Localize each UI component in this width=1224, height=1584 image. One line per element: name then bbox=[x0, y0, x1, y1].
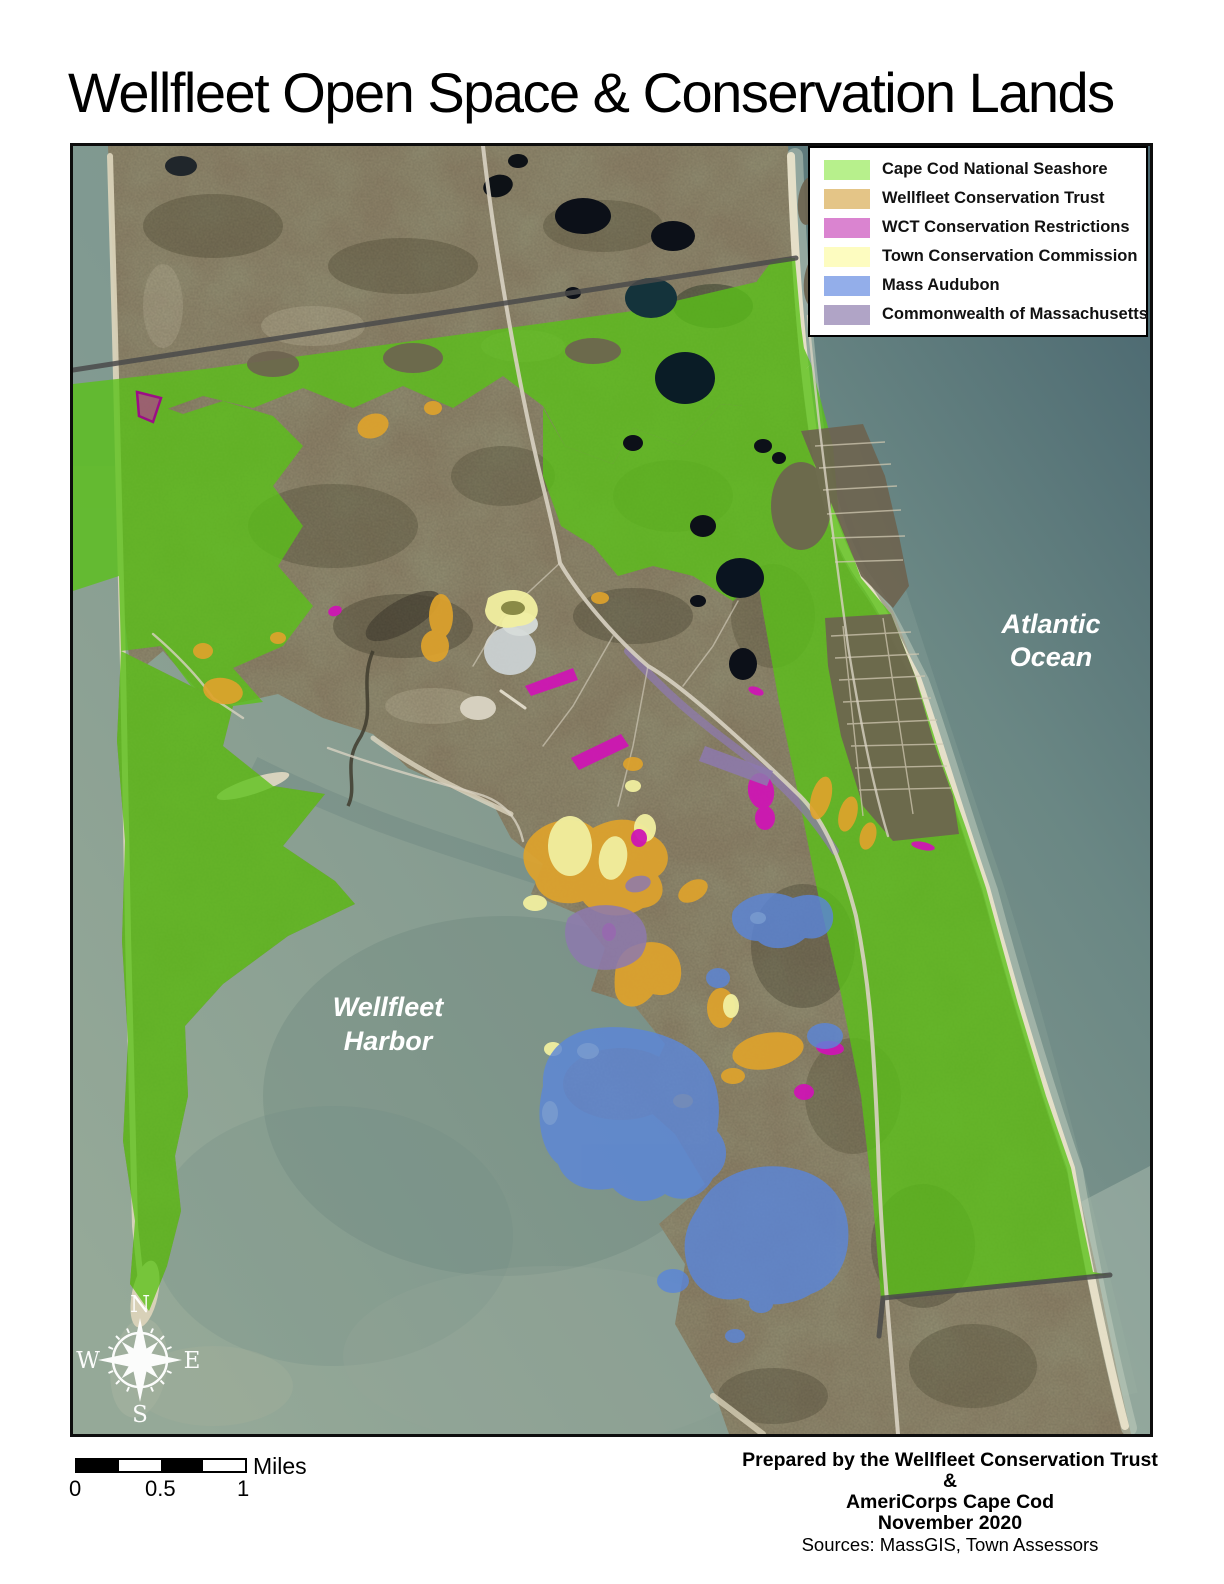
legend-label: Wellfleet Conservation Trust bbox=[882, 189, 1105, 208]
scale-segment bbox=[119, 1460, 161, 1471]
credits-line: & bbox=[740, 1471, 1160, 1492]
wellfleet-harbor-label-line1: Wellfleet bbox=[333, 992, 445, 1022]
scale-segment bbox=[77, 1460, 119, 1471]
legend-swatch bbox=[824, 218, 870, 238]
legend-label: Town Conservation Commission bbox=[882, 247, 1137, 266]
compass-n-label: N bbox=[130, 1292, 150, 1318]
legend-swatch bbox=[824, 276, 870, 296]
scale-bar: Miles 0 0.5 1 bbox=[75, 1458, 335, 1502]
legend-label: WCT Conservation Restrictions bbox=[882, 218, 1130, 237]
scale-bar-ticks: 0 0.5 1 bbox=[75, 1476, 335, 1502]
legend-label: Mass Audubon bbox=[882, 276, 1000, 295]
map-svg: Atlantic Ocean Wellfleet Harbor bbox=[73, 146, 1150, 1434]
legend-swatch bbox=[824, 247, 870, 267]
scale-segment bbox=[161, 1460, 203, 1471]
legend-item: Wellfleet Conservation Trust bbox=[810, 184, 1146, 213]
credits-line: AmeriCorps Cape Cod bbox=[740, 1492, 1160, 1513]
legend-item: WCT Conservation Restrictions bbox=[810, 213, 1146, 242]
map-legend: Cape Cod National SeashoreWellfleet Cons… bbox=[808, 146, 1148, 337]
legend-swatch bbox=[824, 160, 870, 180]
compass-e-label: E bbox=[184, 1348, 201, 1374]
credits-line: Prepared by the Wellfleet Conservation T… bbox=[740, 1450, 1160, 1471]
legend-label: Commonwealth of Massachusetts bbox=[882, 305, 1148, 324]
wellfleet-harbor-label-line2: Harbor bbox=[344, 1026, 434, 1056]
credits-line: November 2020 bbox=[740, 1513, 1160, 1534]
page: Wellfleet Open Space & Conservation Land… bbox=[0, 0, 1224, 1584]
legend-item: Commonwealth of Massachusetts bbox=[810, 300, 1146, 329]
atlantic-ocean-label-line2: Ocean bbox=[1010, 642, 1093, 672]
credits-sources-line: Sources: MassGIS, Town Assessors bbox=[740, 1534, 1160, 1555]
scale-bar-segments bbox=[75, 1458, 247, 1473]
scale-segment bbox=[203, 1460, 245, 1471]
legend-swatch bbox=[824, 189, 870, 209]
cannon-hill-marsh bbox=[501, 601, 525, 615]
compass-w-label: W bbox=[76, 1348, 100, 1374]
page-title: Wellfleet Open Space & Conservation Land… bbox=[68, 60, 1168, 125]
legend-items: Cape Cod National SeashoreWellfleet Cons… bbox=[810, 155, 1146, 329]
atlantic-ocean-label-line1: Atlantic bbox=[1000, 609, 1100, 639]
legend-item: Cape Cod National Seashore bbox=[810, 155, 1146, 184]
credits-block: Prepared by the Wellfleet Conservation T… bbox=[740, 1450, 1160, 1555]
scale-tick: 0 bbox=[69, 1476, 81, 1502]
scale-tick: 0.5 bbox=[145, 1476, 176, 1502]
map-canvas: Atlantic Ocean Wellfleet Harbor bbox=[70, 143, 1153, 1437]
legend-item: Town Conservation Commission bbox=[810, 242, 1146, 271]
legend-swatch bbox=[824, 305, 870, 325]
scale-tick: 1 bbox=[237, 1476, 249, 1502]
legend-label: Cape Cod National Seashore bbox=[882, 160, 1108, 179]
legend-item: Mass Audubon bbox=[810, 271, 1146, 300]
compass-s-label: S bbox=[132, 1402, 148, 1428]
